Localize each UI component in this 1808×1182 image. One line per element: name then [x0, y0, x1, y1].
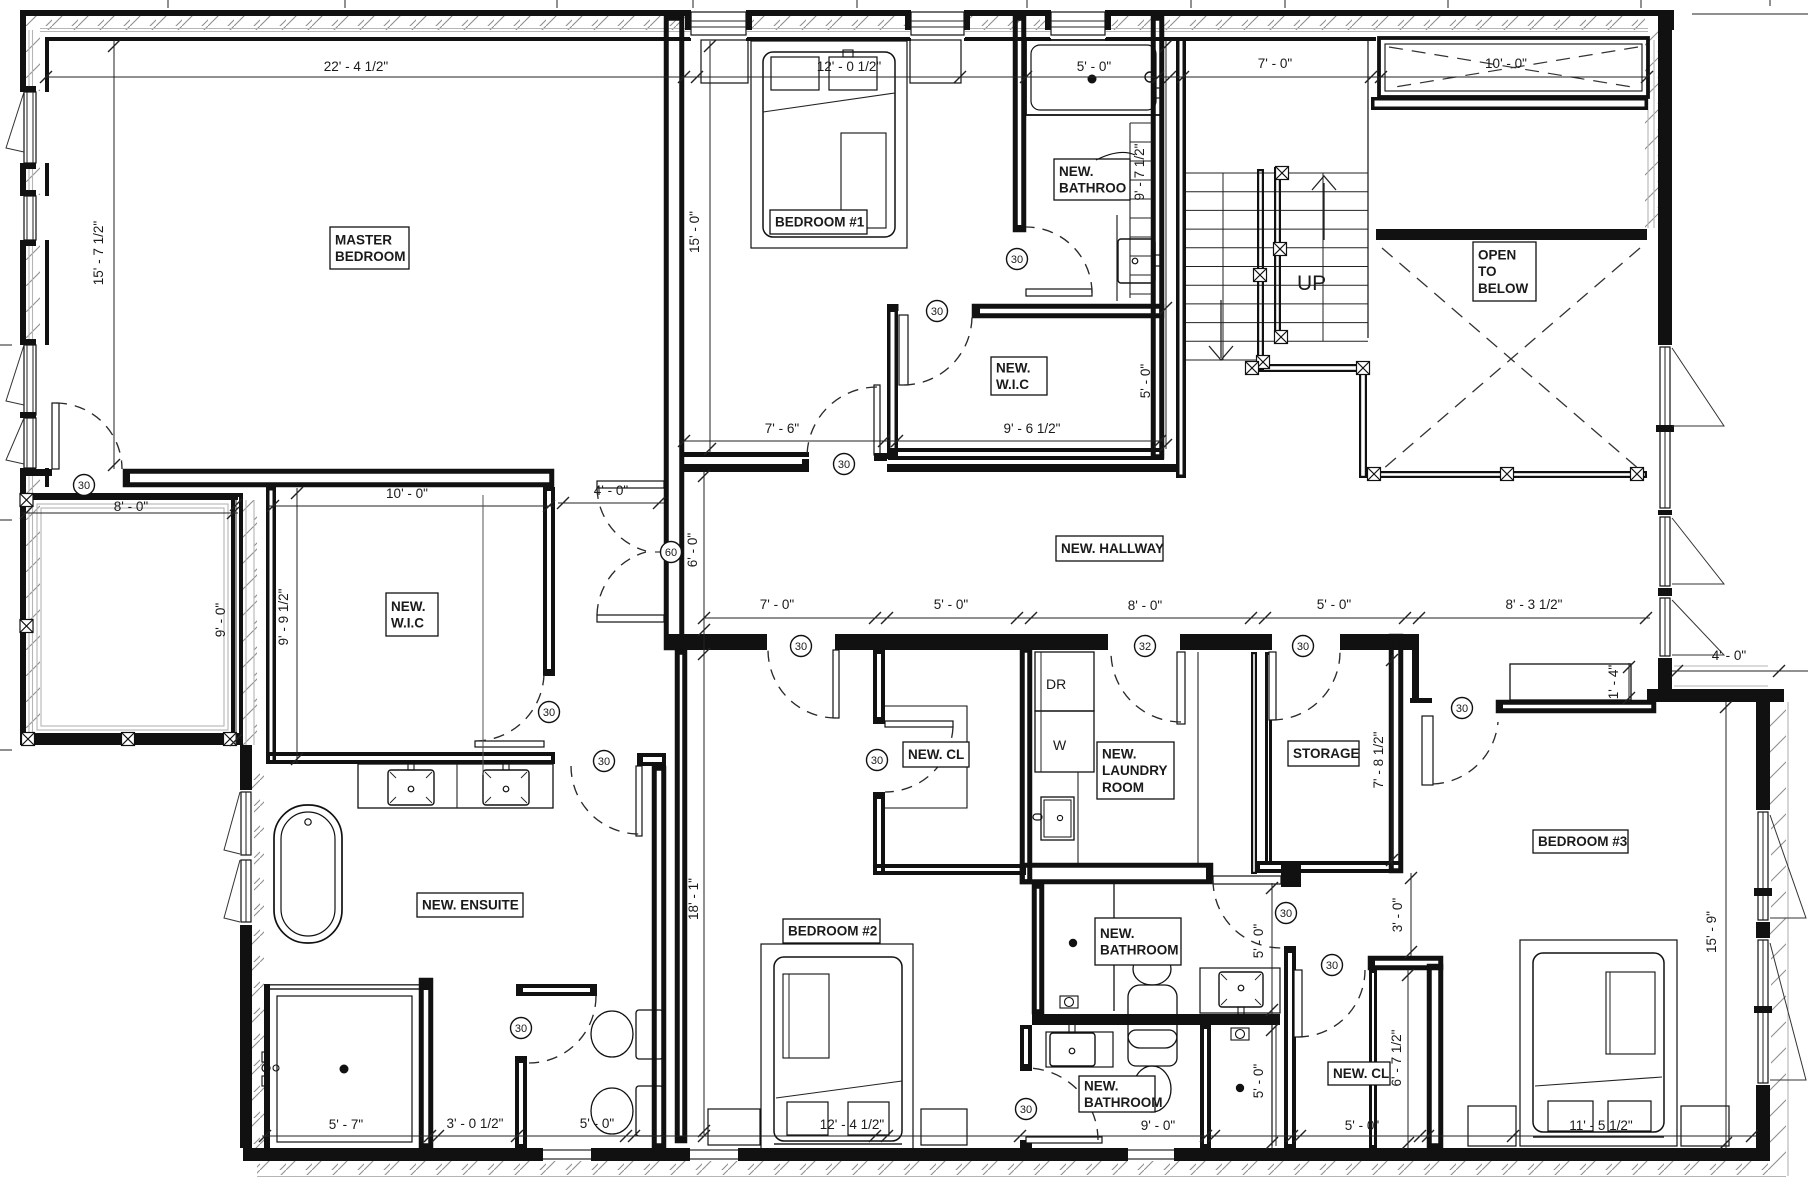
- svg-text:30: 30: [1011, 254, 1023, 266]
- svg-text:8' - 3 1/2": 8' - 3 1/2": [1506, 597, 1563, 612]
- svg-text:30: 30: [931, 306, 943, 318]
- svg-text:30: 30: [795, 641, 807, 653]
- svg-text:NEW.: NEW.: [1102, 747, 1137, 762]
- svg-text:30: 30: [1326, 960, 1338, 972]
- svg-text:OPEN: OPEN: [1478, 248, 1516, 263]
- svg-text:NEW.: NEW.: [1084, 1078, 1119, 1093]
- svg-text:NEW.: NEW.: [1100, 926, 1135, 941]
- svg-text:W.I.C: W.I.C: [996, 377, 1029, 392]
- svg-text:4' - 0": 4' - 0": [594, 483, 629, 498]
- svg-text:NEW.: NEW.: [1059, 164, 1094, 179]
- svg-text:5' - 0": 5' - 0": [1345, 1118, 1380, 1133]
- svg-text:W: W: [1053, 737, 1067, 753]
- svg-text:30: 30: [838, 459, 850, 471]
- svg-text:BEDROOM: BEDROOM: [335, 249, 406, 264]
- svg-text:UP: UP: [1297, 272, 1326, 295]
- svg-text:NEW.: NEW.: [996, 360, 1031, 375]
- svg-text:15' - 7 1/2": 15' - 7 1/2": [91, 221, 106, 286]
- svg-text:60: 60: [665, 547, 677, 559]
- svg-text:30: 30: [515, 1023, 527, 1035]
- svg-text:9' - 0": 9' - 0": [1141, 1118, 1176, 1133]
- svg-text:9' - 6 1/2": 9' - 6 1/2": [1004, 421, 1061, 436]
- svg-text:BEDROOM #2: BEDROOM #2: [788, 924, 877, 939]
- svg-text:15' - 9": 15' - 9": [1704, 911, 1719, 953]
- svg-text:NEW. HALLWAY: NEW. HALLWAY: [1061, 541, 1164, 556]
- svg-text:6' - 0": 6' - 0": [685, 533, 700, 568]
- svg-text:5' - 0": 5' - 0": [1251, 1064, 1266, 1099]
- svg-text:TO: TO: [1478, 264, 1497, 279]
- svg-text:10' - 0": 10' - 0": [1485, 56, 1527, 71]
- svg-text:30: 30: [1020, 1104, 1032, 1116]
- svg-text:BELOW: BELOW: [1478, 281, 1529, 296]
- svg-text:9' - 7 1/2": 9' - 7 1/2": [1132, 143, 1147, 200]
- svg-text:LAUNDRY: LAUNDRY: [1102, 763, 1168, 778]
- svg-text:BATHROO: BATHROO: [1059, 181, 1126, 196]
- svg-text:3' - 0 1/2": 3' - 0 1/2": [447, 1116, 504, 1131]
- svg-text:NEW. ENSUITE: NEW. ENSUITE: [422, 898, 519, 913]
- svg-text:30: 30: [1456, 703, 1468, 715]
- svg-text:MASTER: MASTER: [335, 232, 392, 247]
- svg-text:11' - 5 1/2": 11' - 5 1/2": [1569, 1118, 1633, 1133]
- svg-text:8' - 0": 8' - 0": [1128, 598, 1163, 613]
- svg-text:NEW. CL: NEW. CL: [908, 747, 964, 762]
- svg-text:5' - 7": 5' - 7": [329, 1117, 364, 1132]
- svg-text:4' - 0": 4' - 0": [1712, 648, 1747, 663]
- svg-text:BEDROOM #1: BEDROOM #1: [775, 215, 865, 230]
- svg-text:NEW.: NEW.: [391, 599, 426, 614]
- svg-text:22' - 4 1/2": 22' - 4 1/2": [324, 59, 389, 74]
- svg-text:32: 32: [1139, 641, 1151, 653]
- svg-text:STORAGE: STORAGE: [1293, 746, 1360, 761]
- svg-text:5' - 0": 5' - 0": [580, 1116, 615, 1131]
- svg-text:1' - 4": 1' - 4": [1606, 665, 1621, 700]
- svg-text:7' - 8 1/2": 7' - 8 1/2": [1371, 731, 1386, 788]
- svg-text:9' - 9 1/2": 9' - 9 1/2": [276, 588, 291, 645]
- svg-text:30: 30: [1280, 908, 1292, 920]
- svg-text:5' - 0": 5' - 0": [934, 597, 969, 612]
- svg-text:12' - 0 1/2": 12' - 0 1/2": [817, 59, 882, 74]
- svg-text:30: 30: [1297, 641, 1309, 653]
- svg-text:8' - 0": 8' - 0": [114, 499, 149, 514]
- svg-text:ROOM: ROOM: [1102, 780, 1144, 795]
- svg-text:9' - 0": 9' - 0": [213, 603, 228, 638]
- svg-text:10' - 0": 10' - 0": [386, 486, 428, 501]
- svg-text:DR: DR: [1046, 676, 1066, 692]
- svg-text:7' - 0": 7' - 0": [1258, 56, 1293, 71]
- svg-text:6' - 7 1/2": 6' - 7 1/2": [1389, 1029, 1404, 1086]
- svg-text:30: 30: [543, 707, 555, 719]
- svg-text:30: 30: [871, 755, 883, 767]
- svg-text:BATHROOM: BATHROOM: [1100, 943, 1179, 958]
- svg-text:12' - 4 1/2": 12' - 4 1/2": [820, 1117, 885, 1132]
- svg-text:3' - 0": 3' - 0": [1390, 898, 1405, 933]
- svg-text:BATHROOM: BATHROOM: [1084, 1095, 1163, 1110]
- svg-text:18' - 1": 18' - 1": [686, 878, 701, 920]
- svg-text:5' - 0": 5' - 0": [1317, 597, 1352, 612]
- svg-text:5' - 0": 5' - 0": [1077, 59, 1112, 74]
- svg-text:7' - 6": 7' - 6": [765, 421, 800, 436]
- svg-text:15' - 0": 15' - 0": [687, 211, 702, 253]
- svg-text:5' - 0": 5' - 0": [1251, 924, 1266, 959]
- svg-text:5' - 0": 5' - 0": [1138, 364, 1153, 399]
- svg-text:30: 30: [598, 756, 610, 768]
- svg-text:BEDROOM #3: BEDROOM #3: [1538, 834, 1628, 849]
- svg-text:NEW. CL: NEW. CL: [1333, 1066, 1389, 1081]
- svg-text:7' - 0": 7' - 0": [760, 597, 795, 612]
- svg-text:30: 30: [78, 480, 90, 492]
- svg-text:W.I.C: W.I.C: [391, 616, 424, 631]
